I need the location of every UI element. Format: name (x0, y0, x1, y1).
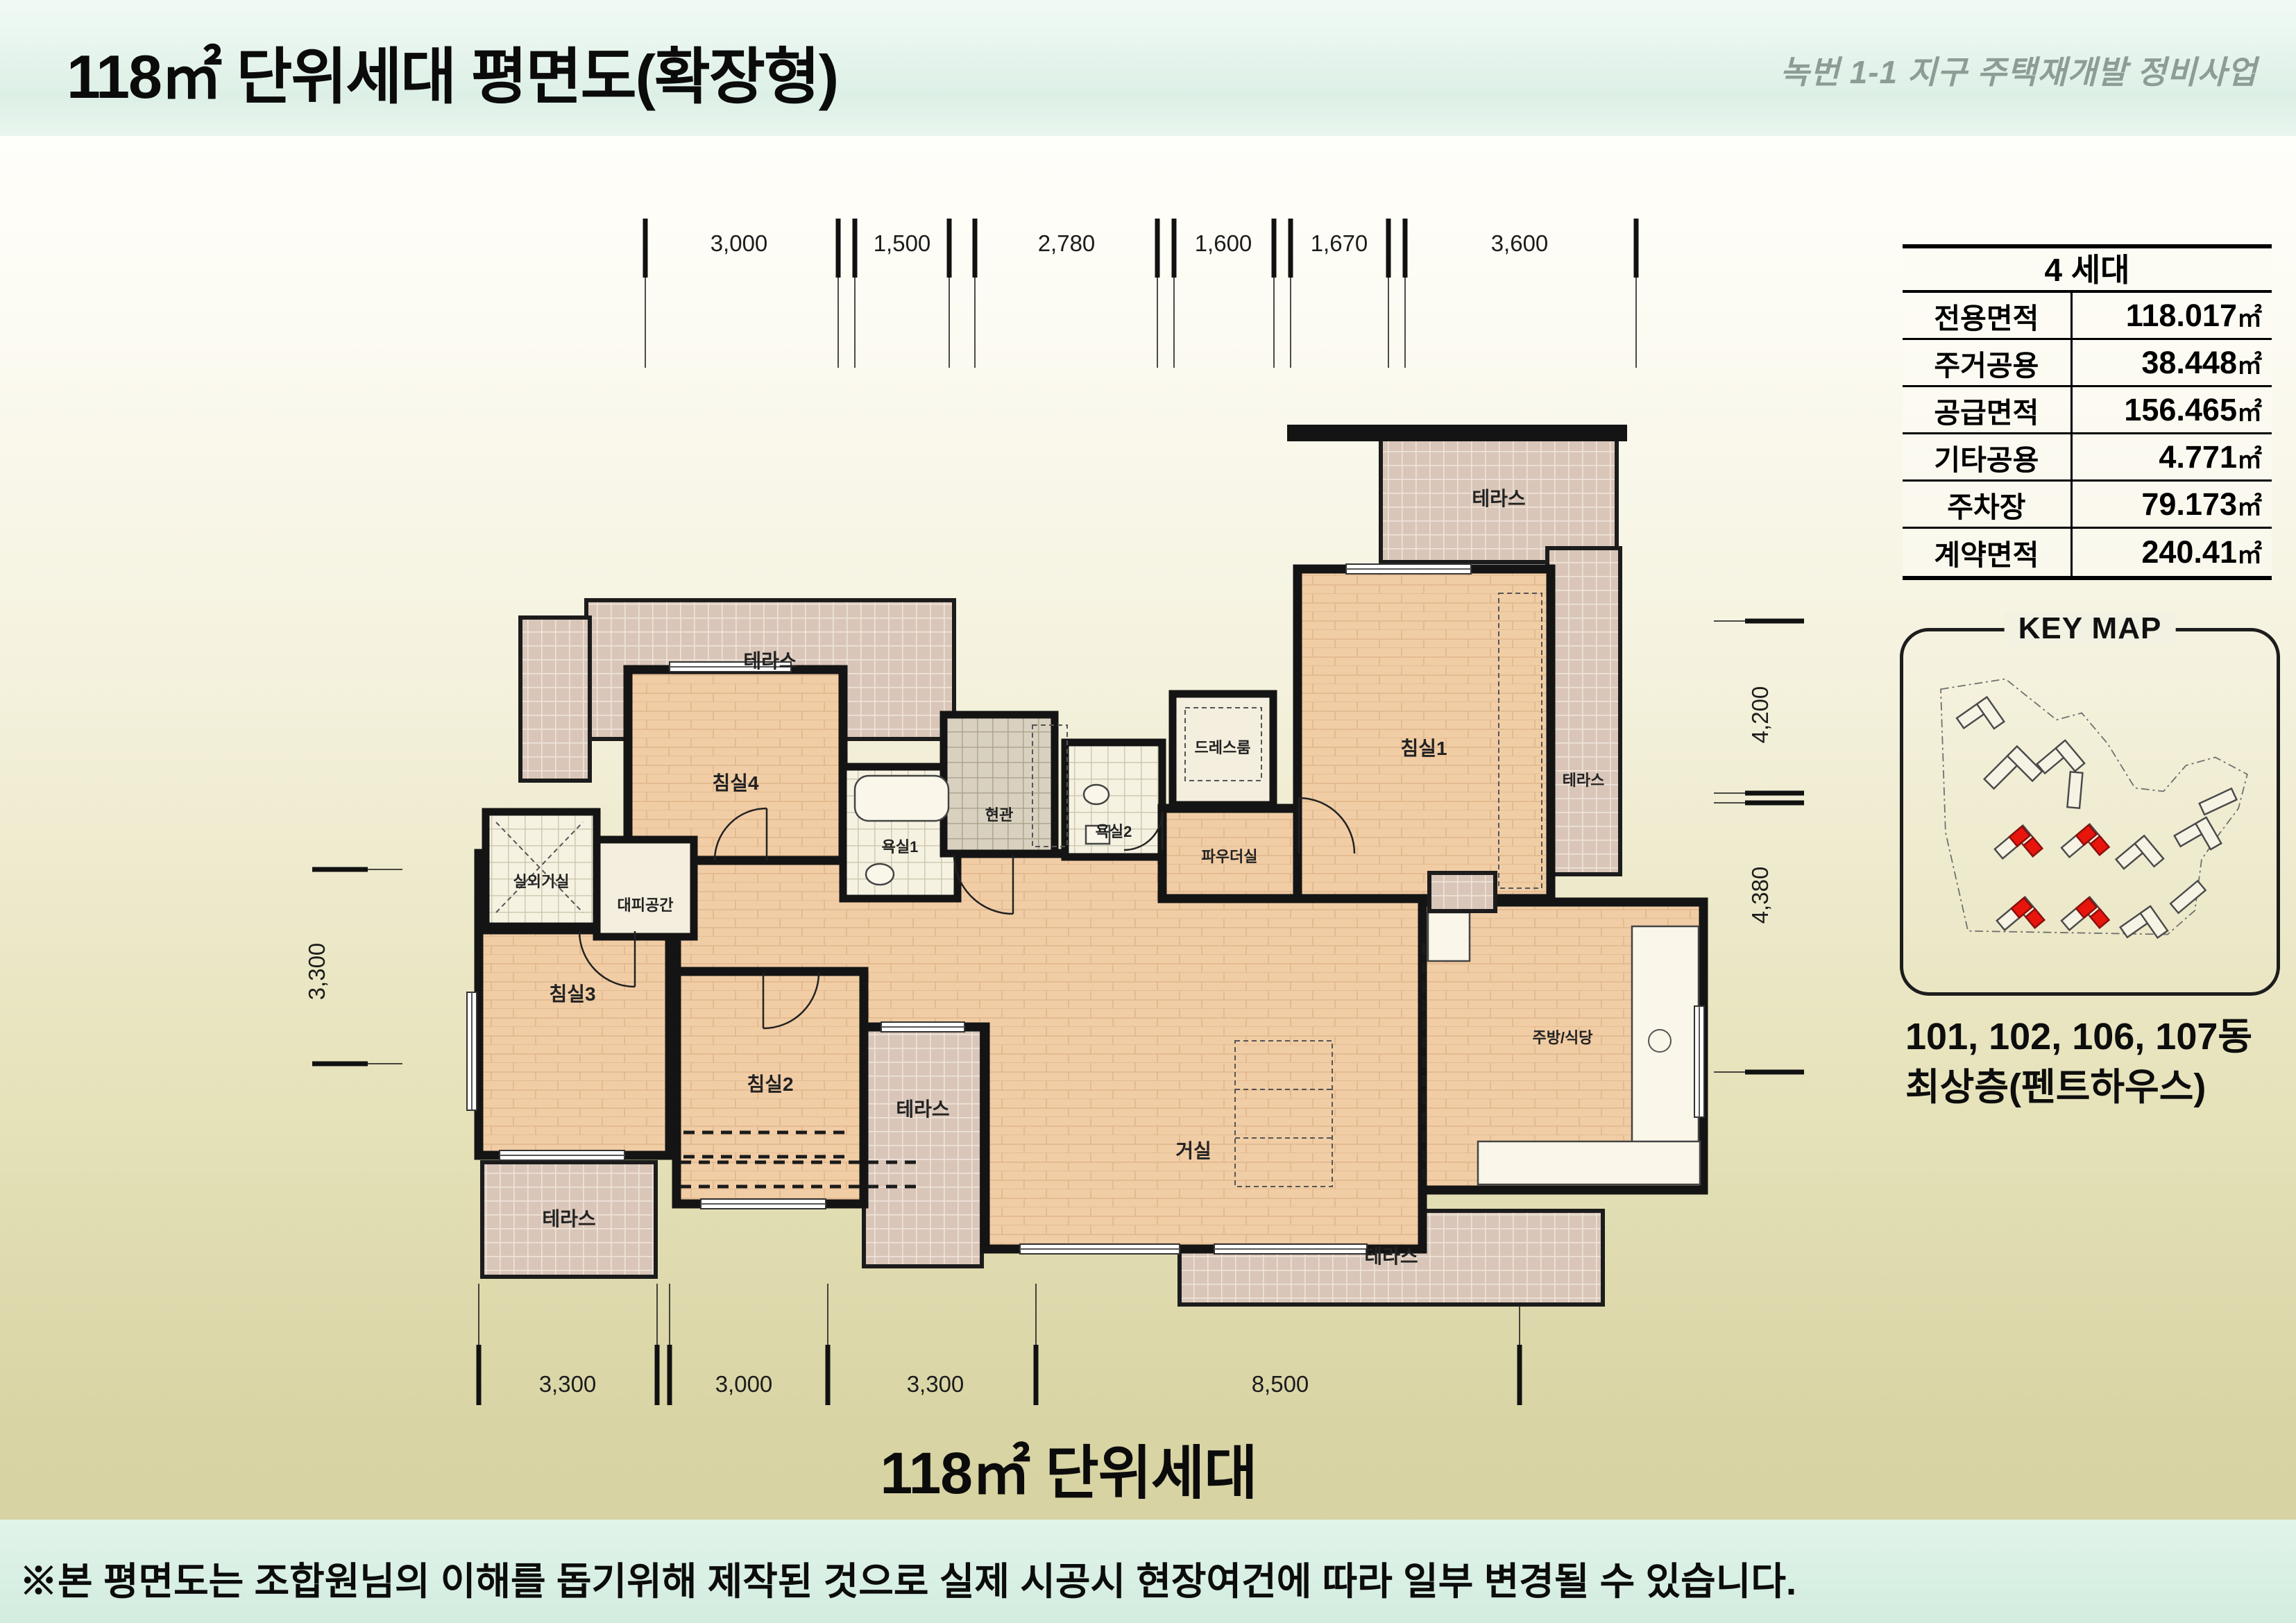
key-map-caption-line1: 101, 102, 106, 107동 (1905, 1012, 2252, 1062)
table-row: 기타공용 4.771㎡ (1903, 434, 2272, 482)
dim-right-1: 4,200 (1747, 686, 1773, 744)
terrace-right-floor (1547, 548, 1620, 874)
dim-top-1: 3,000 (711, 230, 768, 256)
refrigerator (1428, 912, 1470, 961)
project-name: 녹번 1-1 지구 주택재개발 정비사업 (1780, 47, 2257, 93)
area-label: 주차장 (1903, 482, 2073, 527)
dimension-left: 3,300 (304, 869, 402, 1064)
toilet-bath2 (1084, 785, 1109, 804)
floor-plan-drawing: 테라스 테라스 테라스 테라스 테라스 테라스 침실1 침실2 침실3 침실4 … (467, 425, 1704, 1305)
floor-plan-title: 118㎡ 단위세대 (458, 1427, 1679, 1511)
room-label-outdoor-unit: 실외기실 (513, 873, 570, 890)
area-value: 38.448㎡ (2073, 345, 2272, 381)
building (2175, 817, 2222, 862)
dim-top-5: 1,670 (1311, 230, 1368, 256)
building (1957, 697, 2004, 743)
dim-bottom-2: 3,000 (715, 1371, 773, 1397)
room-label-bathroom2: 욕실2 (1096, 823, 1132, 840)
table-row: 계약면적 240.41㎡ (1903, 529, 2272, 576)
toilet-bath1 (866, 864, 894, 885)
key-map: KEY MAP (1900, 628, 2280, 996)
table-row: 공급면적 156.465㎡ (1903, 387, 2272, 434)
entrance-floor (944, 715, 1055, 853)
table-row: 주거공용 38.448㎡ (1903, 340, 2272, 387)
building (2067, 772, 2082, 808)
room-label-evacuation: 대피공간 (618, 897, 674, 914)
building-highlighted (2061, 897, 2109, 944)
bedroom4-floor (628, 670, 843, 860)
area-value: 4.771㎡ (2073, 439, 2272, 475)
room-label-powder: 파우더실 (1202, 848, 1258, 865)
room-label-dressroom: 드레스룸 (1195, 739, 1251, 756)
table-row: 주차장 79.173㎡ (1903, 482, 2272, 529)
building (2120, 906, 2168, 952)
area-label: 계약면적 (1903, 529, 2073, 576)
area-label: 기타공용 (1903, 434, 2073, 479)
key-map-title: KEY MAP (2005, 611, 2176, 646)
dimension-chain-right: 4,200 4,380 (1714, 621, 1804, 1072)
area-value: 118.017㎡ (2073, 298, 2272, 334)
room-label-terrace-middle: 테라스 (896, 1098, 949, 1120)
building (1984, 747, 2042, 804)
kitchen-counter-bottom (1478, 1141, 1700, 1184)
building (2200, 788, 2237, 815)
building-highlighted (2061, 824, 2109, 871)
footer-bar: ※본 평면도는 조합원님의 이해를 돕기위해 제작된 것으로 실제 시공시 현장… (0, 1520, 2296, 1623)
room-label-entrance: 현관 (985, 806, 1013, 824)
room-label-bedroom4: 침실4 (712, 772, 759, 794)
room-label-kitchen: 주방/식당 (1532, 1029, 1592, 1046)
building (2170, 881, 2205, 912)
area-label: 전용면적 (1903, 293, 2073, 338)
key-map-drawing (1903, 645, 2277, 971)
area-value: 156.465㎡ (2073, 392, 2272, 428)
room-label-terrace-right: 테라스 (1563, 772, 1605, 789)
dim-top-4: 1,600 (1195, 230, 1252, 256)
dim-top-3: 2,780 (1038, 230, 1096, 256)
room-label-bedroom2: 침실2 (747, 1073, 793, 1095)
room-label-living: 거실 (1175, 1140, 1211, 1162)
area-table-header: 4 세대 (1903, 248, 2272, 293)
terrace-top-left2-floor (520, 618, 590, 781)
area-value: 79.173㎡ (2073, 486, 2272, 522)
area-value: 240.41㎡ (2073, 534, 2272, 570)
dim-top-6: 3,600 (1491, 230, 1549, 256)
dim-top-2: 1,500 (874, 230, 931, 256)
bathtub (855, 776, 949, 821)
building-highlighted (1997, 897, 2044, 944)
roof-wall (1287, 425, 1627, 441)
area-label: 주거공용 (1903, 340, 2073, 385)
header-bar: 118㎡ 단위세대 평면도(확장형) 녹번 1-1 지구 주택재개발 정비사업 (0, 0, 2296, 136)
room-label-terrace-top-right: 테라스 (1472, 488, 1525, 509)
bedroom3-floor (479, 930, 670, 1155)
building (2116, 835, 2163, 882)
building-highlighted (1995, 826, 2042, 872)
dim-bottom-4: 8,500 (1252, 1371, 1309, 1397)
room-label-terrace-bottom-left: 테라스 (542, 1208, 595, 1230)
page: 118㎡ 단위세대 평면도(확장형) 녹번 1-1 지구 주택재개발 정비사업 (0, 0, 2296, 1623)
dim-bottom-3: 3,300 (907, 1371, 964, 1397)
terrace-middle-floor (864, 1027, 982, 1266)
footnote: ※본 평면도는 조합원님의 이해를 돕기위해 제작된 것으로 실제 시공시 현장… (19, 1550, 1796, 1606)
table-row: 전용면적 118.017㎡ (1903, 293, 2272, 340)
room-label-bedroom1: 침실1 (1400, 738, 1447, 759)
floor-plan: 3,000 1,500 2,780 1,600 1,670 3,600 3,30… (291, 201, 1832, 1443)
area-table: 4 세대 전용면적 118.017㎡ 주거공용 38.448㎡ 공급면적 156… (1903, 244, 2272, 580)
bedroom1-floor (1298, 569, 1551, 899)
kitchen-pantry-tile (1429, 873, 1495, 911)
room-label-terrace-top-left: 테라스 (743, 650, 797, 672)
dim-right-2: 4,380 (1747, 867, 1773, 924)
dimension-chain-top: 3,000 1,500 2,780 1,600 1,670 3,600 (645, 219, 1636, 368)
key-map-caption: 101, 102, 106, 107동 최상층(펜트하우스) (1905, 1012, 2252, 1113)
room-label-bedroom3: 침실3 (549, 983, 595, 1005)
room-label-terrace-bottom-right: 테라스 (1364, 1246, 1418, 1267)
evacuation-space-floor (597, 840, 694, 937)
page-title: 118㎡ 단위세대 평면도(확장형) (67, 28, 837, 116)
dim-bottom-1: 3,300 (539, 1371, 597, 1397)
room-label-bathroom1: 욕실1 (882, 838, 919, 856)
area-label: 공급면적 (1903, 387, 2073, 432)
key-map-caption-line2: 최상층(펜트하우스) (1905, 1062, 2252, 1113)
dim-left-1: 3,300 (304, 943, 330, 1001)
